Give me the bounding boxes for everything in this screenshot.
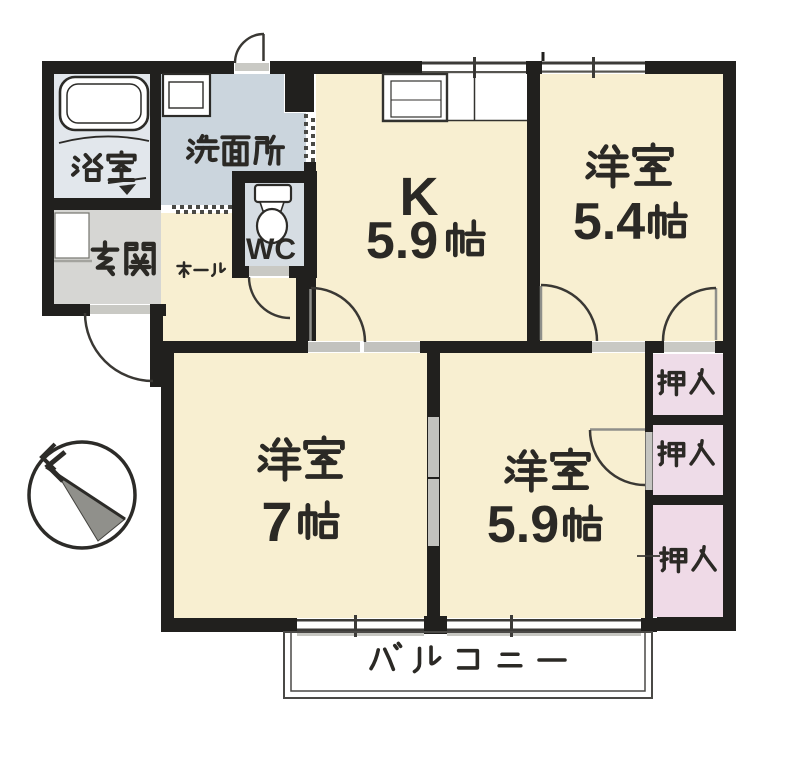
- svg-text:5.9: 5.9: [366, 212, 438, 270]
- svg-text:WC: WC: [246, 233, 296, 266]
- svg-text:7: 7: [261, 490, 292, 553]
- svg-text:5.4: 5.4: [573, 193, 645, 251]
- svg-text:5.9: 5.9: [487, 496, 559, 554]
